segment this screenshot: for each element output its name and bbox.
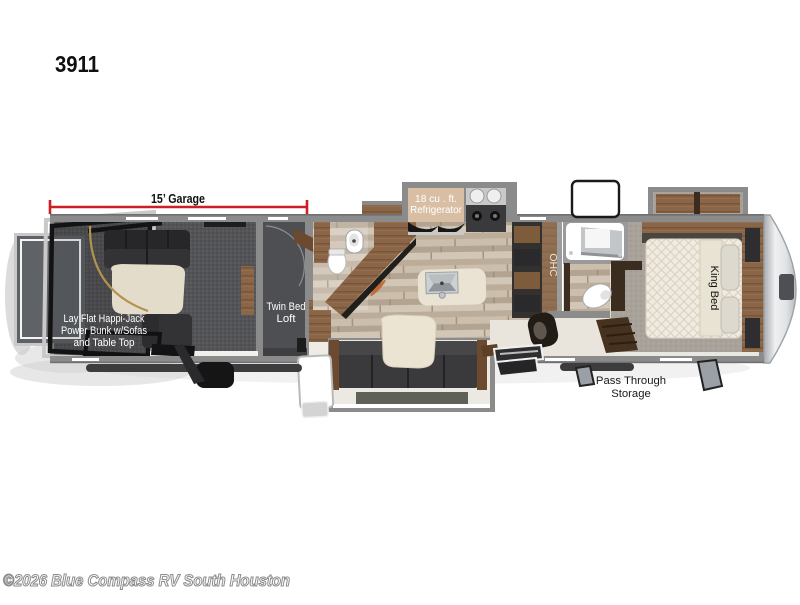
- svg-text:©2026 Blue Compass RV South Ho: ©2026 Blue Compass RV South Houston: [3, 572, 290, 590]
- svg-text:18 cu . ft.: 18 cu . ft.: [415, 194, 457, 205]
- svg-text:Twin Bed: Twin Bed: [267, 301, 306, 313]
- svg-text:3911: 3911: [55, 51, 99, 77]
- svg-text:Refrigerator: Refrigerator: [410, 205, 462, 216]
- svg-text:and Table Top: and Table Top: [74, 337, 135, 349]
- svg-text:Loft: Loft: [277, 313, 296, 325]
- svg-text:Pass Through: Pass Through: [596, 375, 666, 387]
- svg-text:OHC: OHC: [547, 253, 559, 277]
- svg-text:Storage: Storage: [611, 388, 651, 400]
- svg-text:15’ Garage: 15’ Garage: [151, 191, 205, 206]
- svg-text:Power Bunk w/Sofas: Power Bunk w/Sofas: [61, 325, 148, 337]
- svg-text:Lay Flat Happi-Jack: Lay Flat Happi-Jack: [64, 313, 146, 325]
- svg-text:King Bed: King Bed: [708, 266, 720, 311]
